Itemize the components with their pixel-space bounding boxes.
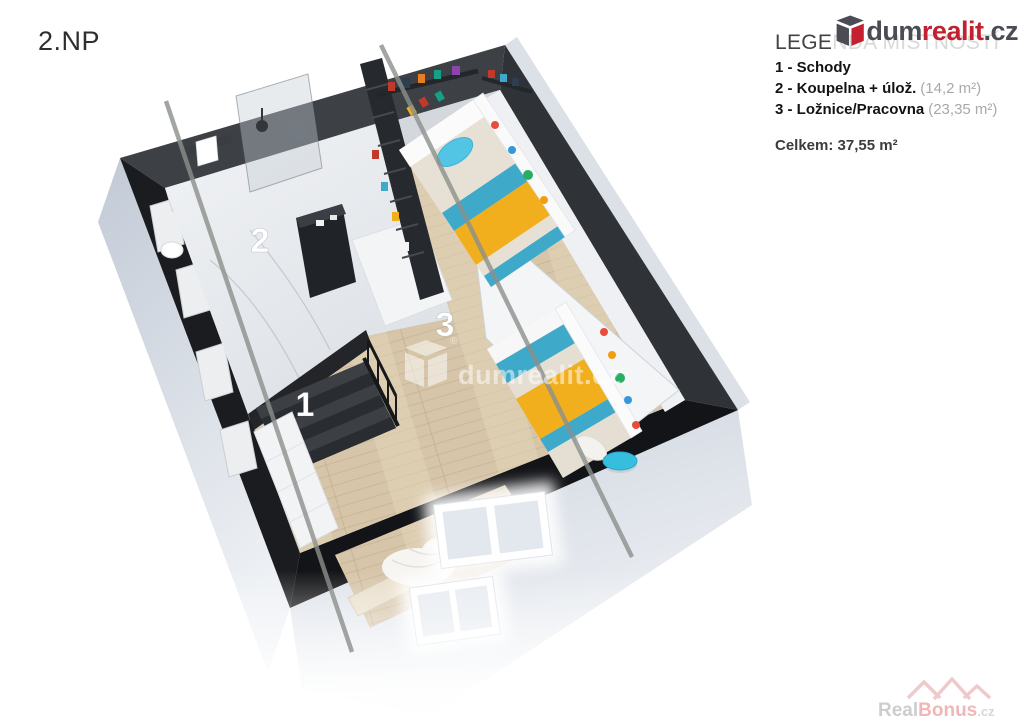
legend-total: Celkem: 37,55 m² bbox=[775, 137, 898, 154]
legend-item-label: 2 - Koupelna + úlož. bbox=[775, 80, 916, 97]
dumrealit-logo-text: dumrealit.cz bbox=[866, 16, 1018, 47]
realbonus-roofs-icon bbox=[904, 676, 1014, 702]
realbonus-watermark: RealBonus.cz bbox=[878, 676, 1014, 722]
logo-text-dum: dum bbox=[866, 16, 922, 46]
pouf bbox=[603, 452, 637, 470]
logo-text-realit: realit bbox=[922, 16, 984, 46]
legend-item-label: 1 - Schody bbox=[775, 59, 851, 76]
logo-text-cz: .cz bbox=[983, 16, 1018, 46]
legend-item-label: 3 - Ložnice/Pracovna bbox=[775, 101, 924, 118]
realbonus-cz: .cz bbox=[977, 704, 994, 719]
watermark-reg: ® bbox=[450, 336, 458, 347]
realbonus-bonus: Bonus bbox=[918, 700, 977, 721]
bottom-fade bbox=[60, 570, 820, 724]
dumrealit-logo-icon bbox=[836, 7, 864, 55]
center-watermark-text: dumrealit.cz bbox=[458, 360, 622, 390]
room-label-2: 2 bbox=[251, 222, 270, 260]
legend-item-koupelna: 2 - Koupelna + úlož.(14,2 m²) bbox=[775, 80, 981, 97]
floorplan-page: 2.NP bbox=[0, 0, 1024, 724]
legend-item-area: (23,35 m²) bbox=[928, 101, 997, 118]
window-upper bbox=[422, 480, 563, 579]
realbonus-text: RealBonus.cz bbox=[878, 700, 1014, 722]
legend-item-area: (14,2 m²) bbox=[920, 80, 981, 97]
realbonus-real: Real bbox=[878, 700, 918, 721]
niche-fixture bbox=[161, 242, 183, 258]
legend-item-loznice: 3 - Ložnice/Pracovna(23,35 m²) bbox=[775, 101, 997, 118]
legend-item-schody: 1 - Schody bbox=[775, 59, 855, 76]
room-label-1: 1 bbox=[296, 386, 315, 424]
dumrealit-logo: dumrealit.cz bbox=[832, 2, 1018, 60]
